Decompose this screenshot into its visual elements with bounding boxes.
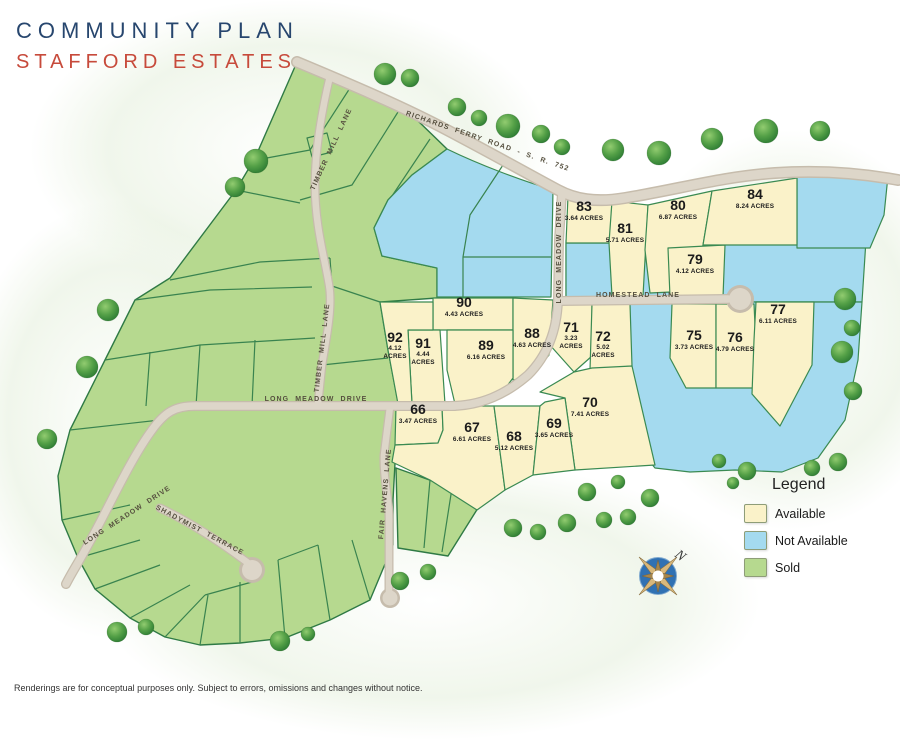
tree-icon bbox=[301, 627, 315, 641]
tree-icon bbox=[647, 141, 671, 165]
svg-text:4.43 ACRES: 4.43 ACRES bbox=[445, 311, 484, 318]
tree-icon bbox=[620, 509, 636, 525]
svg-text:4.44: 4.44 bbox=[416, 351, 429, 358]
legend-label: Not Available bbox=[775, 534, 848, 548]
legend: Legend AvailableNot AvailableSold bbox=[744, 476, 848, 585]
legend-items: AvailableNot AvailableSold bbox=[744, 504, 848, 577]
svg-text:75: 75 bbox=[686, 327, 702, 343]
svg-text:ACRES: ACRES bbox=[411, 359, 435, 366]
tree-icon bbox=[107, 622, 127, 642]
svg-text:4.63 ACRES: 4.63 ACRES bbox=[513, 342, 552, 349]
blue-parcel-west-of-83 bbox=[566, 243, 612, 298]
svg-text:68: 68 bbox=[506, 428, 522, 444]
legend-swatch-sold bbox=[744, 558, 767, 577]
tree-icon bbox=[810, 121, 830, 141]
tree-icon bbox=[270, 631, 290, 651]
svg-text:90: 90 bbox=[456, 294, 472, 310]
tree-icon bbox=[578, 483, 596, 501]
tree-icon bbox=[611, 475, 625, 489]
svg-text:70: 70 bbox=[582, 394, 598, 410]
tree-icon bbox=[727, 477, 739, 489]
svg-text:ACRES: ACRES bbox=[559, 343, 583, 350]
title-block: COMMUNITY PLAN STAFFORD ESTATES bbox=[16, 18, 299, 74]
disclaimer-text: Renderings are for conceptual purposes o… bbox=[14, 683, 423, 693]
svg-text:66: 66 bbox=[410, 401, 426, 417]
legend-swatch-available bbox=[744, 504, 767, 523]
tree-icon bbox=[844, 382, 862, 400]
community-plan-map: RICHARDS FERRY ROAD - S. R. 752LONG MEAD… bbox=[0, 0, 900, 750]
svg-text:7.41 ACRES: 7.41 ACRES bbox=[571, 411, 610, 418]
svg-text:4.79 ACRES: 4.79 ACRES bbox=[716, 346, 755, 353]
tree-icon bbox=[532, 125, 550, 143]
tree-icon bbox=[554, 139, 570, 155]
svg-text:3.73 ACRES: 3.73 ACRES bbox=[675, 344, 714, 351]
svg-text:89: 89 bbox=[478, 337, 494, 353]
tree-icon bbox=[831, 341, 853, 363]
svg-text:92: 92 bbox=[387, 329, 403, 345]
tree-icon bbox=[420, 564, 436, 580]
svg-text:88: 88 bbox=[524, 325, 540, 341]
legend-item-available: Available bbox=[744, 504, 848, 523]
tree-icon bbox=[138, 619, 154, 635]
svg-text:8.24 ACRES: 8.24 ACRES bbox=[736, 203, 775, 210]
tree-icon bbox=[804, 460, 820, 476]
page-subtitle: STAFFORD ESTATES bbox=[16, 51, 299, 74]
svg-text:80: 80 bbox=[670, 197, 686, 213]
svg-text:6.11 ACRES: 6.11 ACRES bbox=[759, 318, 798, 325]
svg-text:ACRES: ACRES bbox=[591, 352, 615, 359]
svg-text:83: 83 bbox=[576, 198, 592, 214]
svg-text:5.12 ACRES: 5.12 ACRES bbox=[495, 445, 534, 452]
tree-icon bbox=[496, 114, 520, 138]
tree-icon bbox=[76, 356, 98, 378]
svg-text:71: 71 bbox=[563, 319, 579, 335]
svg-text:91: 91 bbox=[415, 335, 431, 351]
tree-icon bbox=[829, 453, 847, 471]
svg-text:3.65 ACRES: 3.65 ACRES bbox=[535, 432, 574, 439]
svg-text:76: 76 bbox=[727, 329, 743, 345]
svg-text:3.47 ACRES: 3.47 ACRES bbox=[399, 418, 438, 425]
tree-icon bbox=[641, 489, 659, 507]
lot-81-parcel bbox=[609, 201, 648, 296]
svg-text:6.87 ACRES: 6.87 ACRES bbox=[659, 214, 698, 221]
tree-icon bbox=[244, 149, 268, 173]
tree-icon bbox=[602, 139, 624, 161]
svg-text:81: 81 bbox=[617, 220, 633, 236]
legend-item-sold: Sold bbox=[744, 558, 848, 577]
legend-label: Available bbox=[775, 507, 826, 521]
svg-text:ACRES: ACRES bbox=[383, 353, 407, 360]
legend-title: Legend bbox=[772, 476, 848, 494]
svg-text:5.02: 5.02 bbox=[596, 344, 609, 351]
svg-text:77: 77 bbox=[770, 301, 786, 317]
legend-swatch-not-available bbox=[744, 531, 767, 550]
tree-icon bbox=[834, 288, 856, 310]
svg-text:4.12 ACRES: 4.12 ACRES bbox=[676, 268, 715, 275]
tree-icon bbox=[504, 519, 522, 537]
svg-text:4.12: 4.12 bbox=[388, 345, 401, 352]
tree-icon bbox=[374, 63, 396, 85]
tree-icon bbox=[225, 177, 245, 197]
tree-icon bbox=[401, 69, 419, 87]
svg-text:79: 79 bbox=[687, 251, 703, 267]
tree-icon bbox=[558, 514, 576, 532]
svg-text:6.16 ACRES: 6.16 ACRES bbox=[467, 354, 506, 361]
tree-icon bbox=[596, 512, 612, 528]
svg-text:6.61 ACRES: 6.61 ACRES bbox=[453, 436, 492, 443]
tree-icon bbox=[448, 98, 466, 116]
road-label: LONG MEADOW DRIVE bbox=[556, 201, 563, 304]
legend-item-not-available: Not Available bbox=[744, 531, 848, 550]
road-label: HOMESTEAD LANE bbox=[596, 292, 680, 299]
tree-icon bbox=[701, 128, 723, 150]
svg-text:3.23: 3.23 bbox=[564, 335, 577, 342]
tree-icon bbox=[97, 299, 119, 321]
tree-icon bbox=[471, 110, 487, 126]
legend-label: Sold bbox=[775, 561, 800, 575]
tree-icon bbox=[844, 320, 860, 336]
tree-icon bbox=[754, 119, 778, 143]
tree-icon bbox=[712, 454, 726, 468]
svg-text:67: 67 bbox=[464, 419, 480, 435]
tree-icon bbox=[37, 429, 57, 449]
svg-text:72: 72 bbox=[595, 328, 611, 344]
page-title: COMMUNITY PLAN bbox=[16, 18, 299, 44]
svg-text:3.64 ACRES: 3.64 ACRES bbox=[565, 215, 604, 222]
svg-text:84: 84 bbox=[747, 186, 763, 202]
road-label: LONG MEADOW DRIVE bbox=[265, 396, 368, 403]
tree-icon bbox=[391, 572, 409, 590]
tree-icon bbox=[530, 524, 546, 540]
svg-text:5.71 ACRES: 5.71 ACRES bbox=[606, 237, 645, 244]
community-plan-page: RICHARDS FERRY ROAD - S. R. 752LONG MEAD… bbox=[0, 0, 900, 750]
svg-text:69: 69 bbox=[546, 415, 562, 431]
